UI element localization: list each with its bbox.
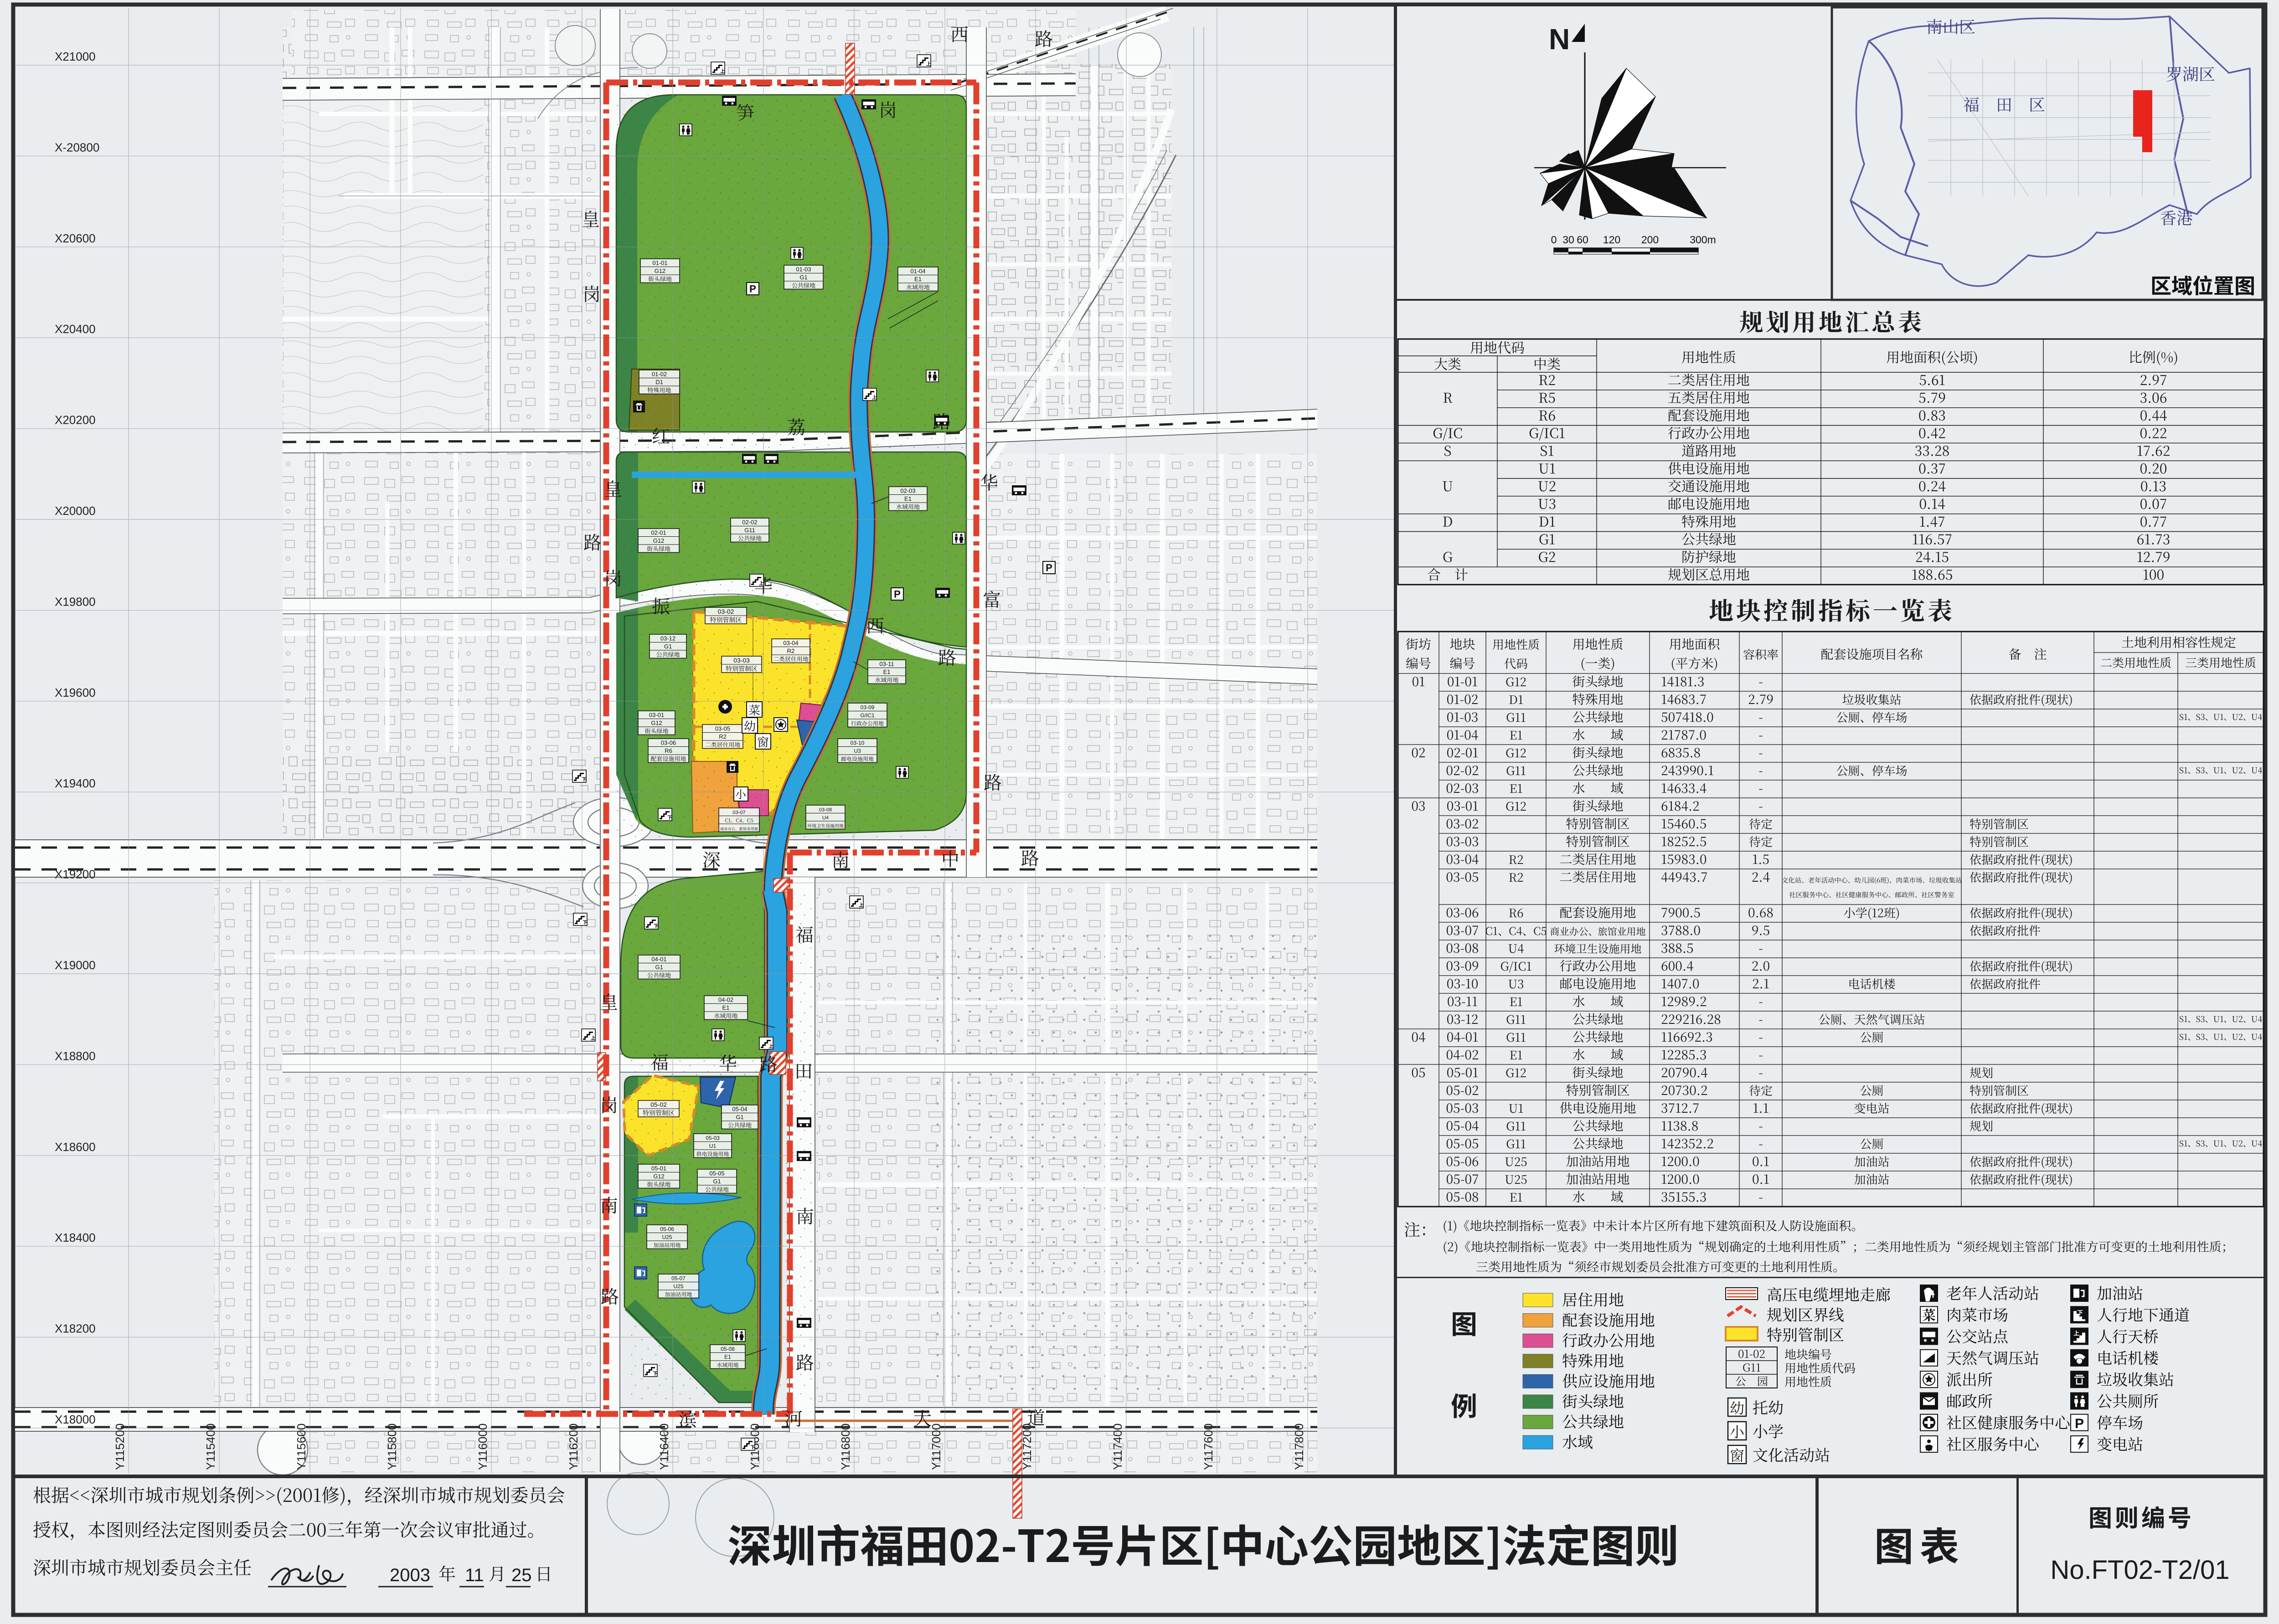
svg-text:G1: G1: [736, 1114, 743, 1120]
svg-text:120: 120: [1603, 234, 1620, 246]
svg-text:X21000: X21000: [55, 50, 96, 63]
svg-text:05-08: 05-08: [721, 1346, 735, 1352]
svg-text:05-07: 05-07: [671, 1275, 686, 1282]
svg-text:G12: G12: [653, 537, 665, 544]
svg-text:Y116200: Y116200: [567, 1424, 580, 1470]
svg-text:03-02: 03-02: [718, 608, 734, 615]
svg-text:X20600: X20600: [55, 231, 96, 245]
svg-text:X19600: X19600: [55, 686, 96, 699]
svg-text:X18400: X18400: [55, 1231, 96, 1244]
svg-text:Y115800: Y115800: [385, 1424, 399, 1470]
svg-text:X19200: X19200: [55, 868, 96, 881]
svg-text:03-07: 03-07: [732, 810, 745, 816]
svg-text:2003: 2003: [390, 1565, 430, 1585]
svg-text:Y117800: Y117800: [1292, 1424, 1306, 1470]
svg-text:G/IC1: G/IC1: [860, 712, 875, 719]
svg-text:R6: R6: [665, 747, 672, 754]
svg-text:X19800: X19800: [55, 595, 96, 608]
svg-text:60: 60: [1577, 234, 1588, 246]
svg-text:05-04: 05-04: [732, 1106, 747, 1113]
svg-text:Y115400: Y115400: [204, 1424, 217, 1470]
svg-text:02-01: 02-01: [651, 529, 666, 536]
svg-text:05-03: 05-03: [706, 1135, 720, 1141]
svg-text:30: 30: [1562, 234, 1574, 246]
svg-text:Y117600: Y117600: [1201, 1424, 1215, 1470]
svg-text:X18600: X18600: [55, 1140, 96, 1154]
svg-text:X19000: X19000: [55, 958, 96, 972]
svg-text:U25: U25: [662, 1234, 672, 1240]
svg-text:X18200: X18200: [55, 1322, 96, 1336]
svg-text:01-01: 01-01: [652, 260, 667, 267]
svg-text:U1: U1: [709, 1143, 717, 1149]
svg-text:03-09: 03-09: [861, 704, 875, 711]
svg-text:Y117400: Y117400: [1111, 1424, 1124, 1470]
svg-text:G12: G12: [653, 1173, 665, 1180]
svg-text:200: 200: [1641, 234, 1659, 246]
svg-text:P: P: [1046, 562, 1052, 574]
svg-text:01-03: 01-03: [796, 266, 811, 273]
svg-text:Y115600: Y115600: [294, 1424, 308, 1470]
svg-text:Y115200: Y115200: [113, 1424, 127, 1470]
svg-text:Y116400: Y116400: [657, 1424, 671, 1470]
svg-text:Y116000: Y116000: [476, 1424, 490, 1470]
svg-text:G1: G1: [713, 1178, 721, 1185]
svg-text:03-12: 03-12: [660, 635, 675, 642]
svg-text:E1: E1: [904, 495, 912, 502]
svg-text:G1: G1: [664, 643, 672, 650]
svg-text:11: 11: [465, 1565, 484, 1585]
svg-text:Y117000: Y117000: [929, 1424, 943, 1470]
svg-text:03-04: 03-04: [783, 640, 798, 647]
svg-text:E1: E1: [724, 1354, 731, 1360]
svg-text:X18800: X18800: [55, 1049, 96, 1063]
svg-text:04-01: 04-01: [651, 956, 666, 963]
svg-text:X20000: X20000: [55, 504, 96, 518]
svg-text:X20200: X20200: [55, 413, 96, 427]
svg-text:R2: R2: [719, 733, 727, 740]
svg-text:02-03: 02-03: [900, 488, 915, 494]
svg-text:X19400: X19400: [55, 776, 96, 790]
svg-text:P: P: [749, 283, 756, 295]
svg-text:G12: G12: [651, 719, 662, 726]
svg-text:R2: R2: [787, 648, 795, 654]
svg-text:03-10: 03-10: [851, 740, 865, 746]
svg-text:05-02: 05-02: [650, 1101, 667, 1108]
svg-text:05-05: 05-05: [709, 1170, 724, 1177]
svg-text:P: P: [894, 589, 901, 600]
svg-text:No.FT02-T2/01: No.FT02-T2/01: [2050, 1555, 2229, 1585]
svg-text:02-02: 02-02: [742, 519, 757, 526]
svg-text:04-02: 04-02: [718, 997, 733, 1003]
svg-text:Y116800: Y116800: [839, 1424, 852, 1470]
svg-text:03-08: 03-08: [819, 807, 832, 813]
svg-text:E1: E1: [883, 668, 891, 675]
svg-text:X18000: X18000: [55, 1413, 96, 1426]
svg-text:01-04: 01-04: [910, 268, 925, 275]
svg-text:U3: U3: [854, 748, 861, 754]
svg-text:0: 0: [1551, 234, 1557, 246]
svg-text:E1: E1: [722, 1004, 730, 1011]
svg-text:E1: E1: [914, 276, 922, 283]
svg-text:P: P: [2075, 1416, 2084, 1431]
svg-text:N: N: [1549, 23, 1570, 56]
svg-text:03-01: 03-01: [649, 712, 664, 719]
svg-text:25: 25: [511, 1565, 532, 1585]
svg-text:05-01: 05-01: [651, 1165, 666, 1172]
svg-text:U25: U25: [673, 1283, 683, 1290]
svg-text:G1: G1: [799, 274, 807, 281]
svg-text:G1: G1: [655, 964, 663, 971]
svg-text:X-20800: X-20800: [55, 140, 99, 154]
svg-text:03-05: 03-05: [715, 725, 730, 732]
svg-text:03-06: 03-06: [661, 740, 676, 746]
svg-text:300m: 300m: [1690, 234, 1716, 246]
svg-text:01-02: 01-02: [652, 371, 667, 378]
svg-text:03-11: 03-11: [879, 661, 894, 668]
svg-text:D1: D1: [655, 379, 663, 385]
svg-text:03-03: 03-03: [733, 657, 750, 664]
svg-text:05-06: 05-06: [660, 1226, 674, 1233]
svg-text:X20400: X20400: [55, 322, 96, 336]
svg-text:U4: U4: [822, 815, 829, 821]
svg-text:G12: G12: [655, 267, 666, 274]
svg-text:G11: G11: [744, 527, 755, 534]
